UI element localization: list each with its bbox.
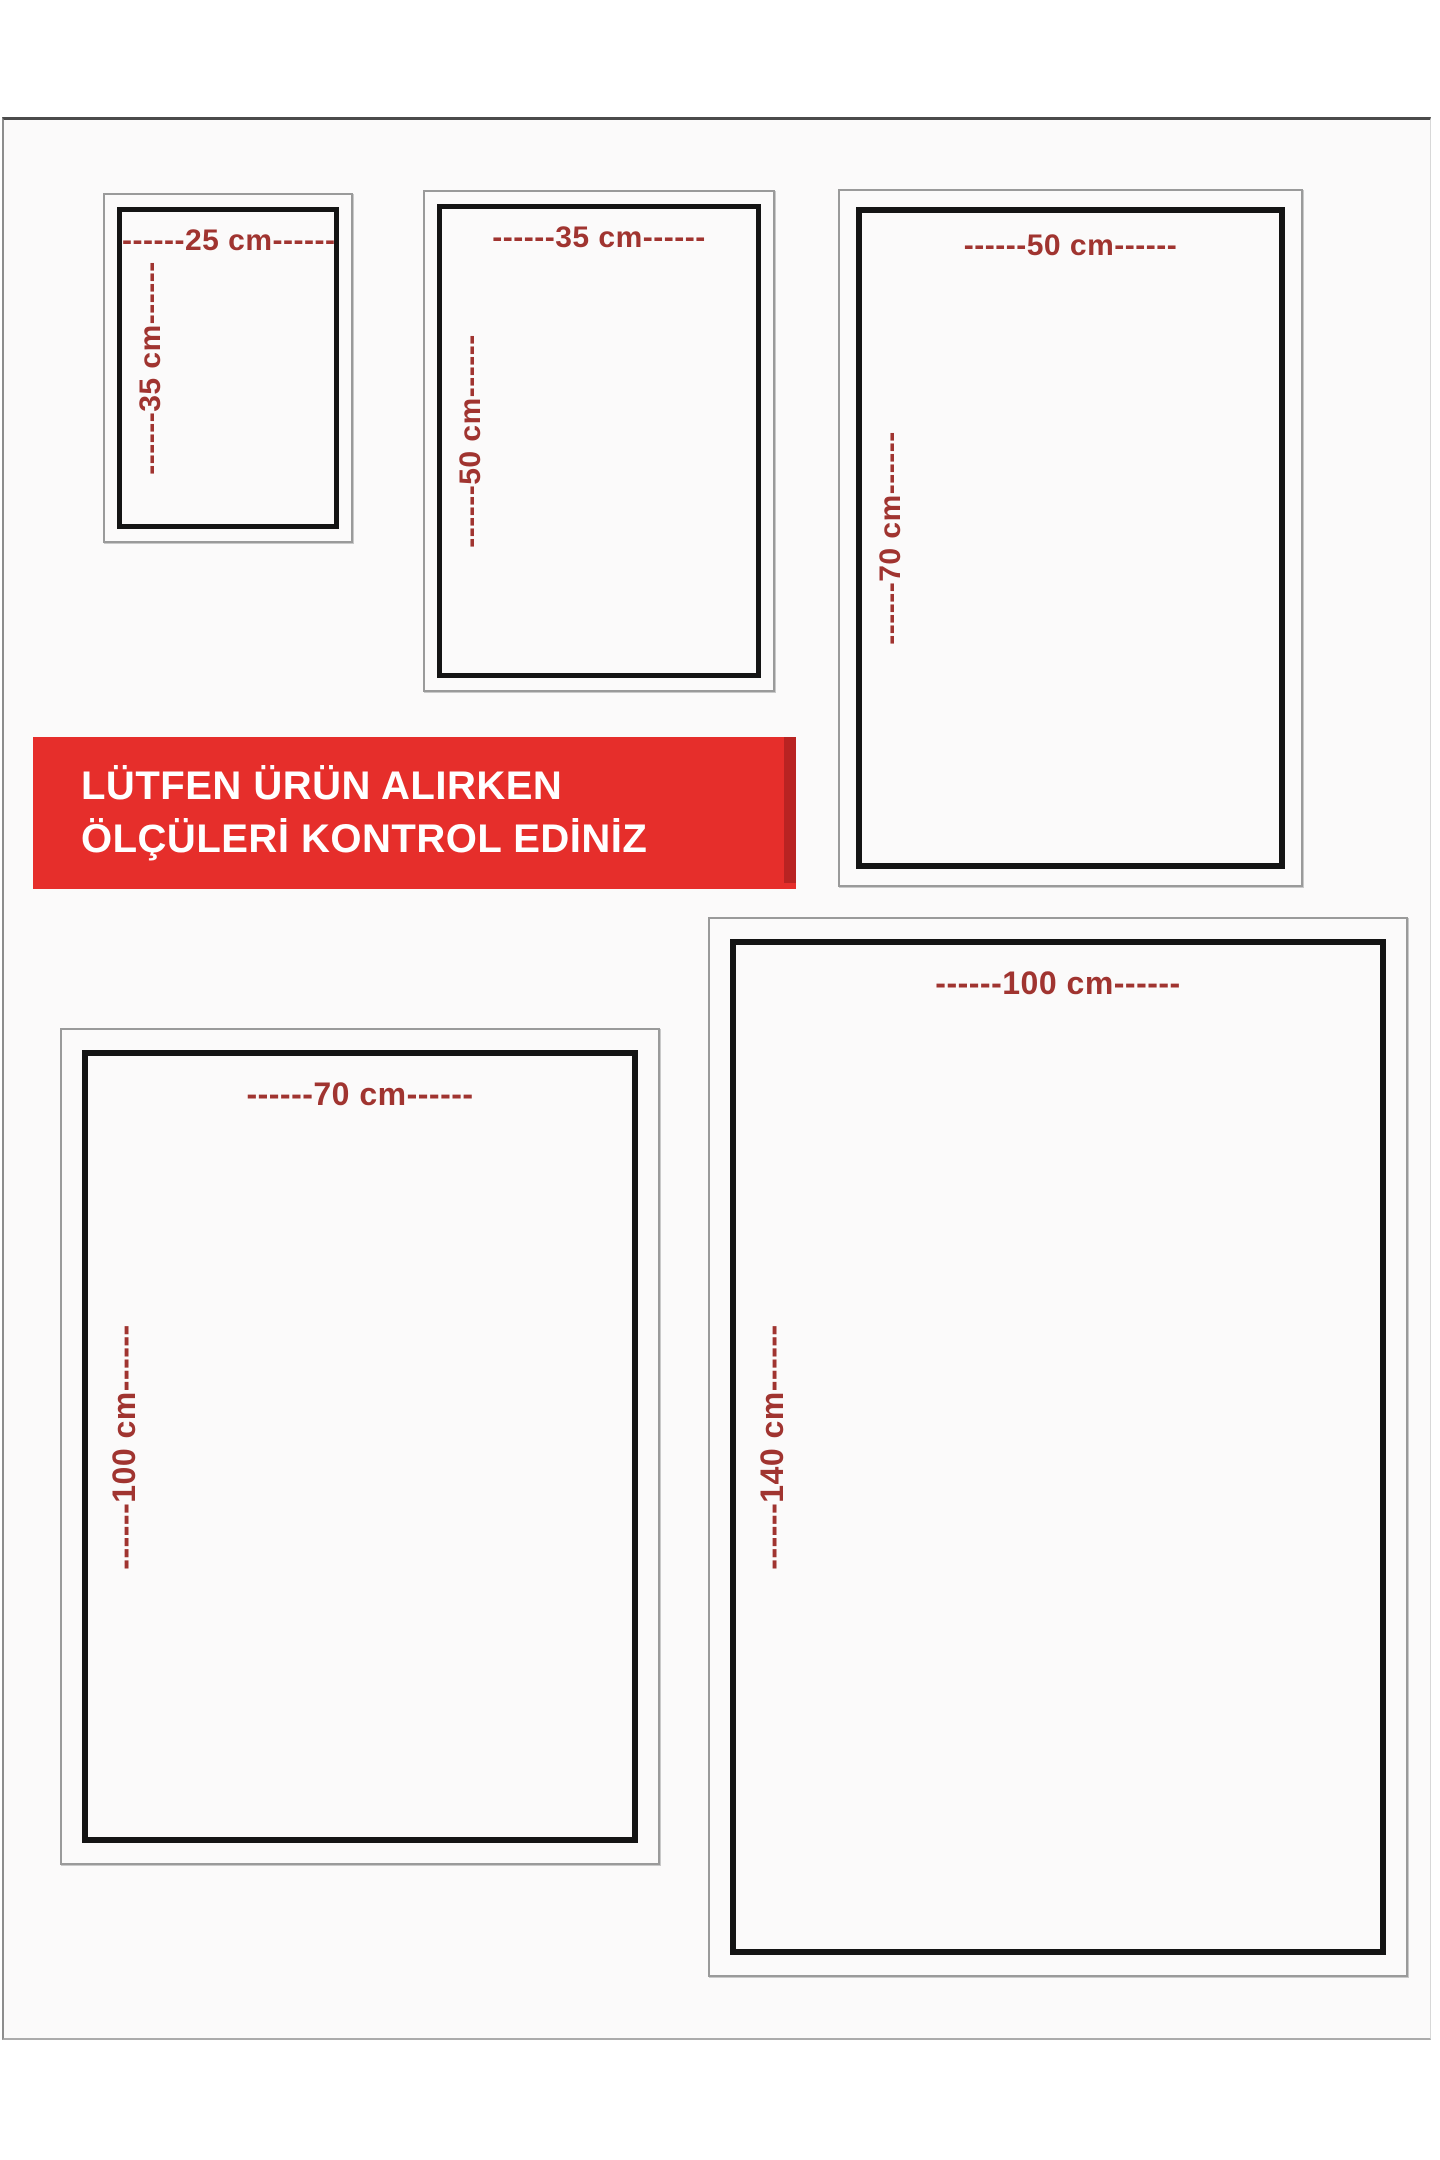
width-label: ------25 cm------ xyxy=(122,224,334,258)
size-box-70x100-frame: ------70 cm------ ------100 cm------ xyxy=(82,1050,638,1843)
size-box-70x100: ------70 cm------ ------100 cm------ xyxy=(60,1028,660,1865)
height-label: ------70 cm------ xyxy=(874,431,908,644)
size-box-50x70: ------50 cm------ ------70 cm------ xyxy=(838,189,1303,887)
size-box-35x50: ------35 cm------ ------50 cm------ xyxy=(423,190,775,692)
size-box-100x140: ------100 cm------ ------140 cm------ xyxy=(708,917,1408,1977)
height-label: ------100 cm------ xyxy=(106,1324,143,1569)
width-label: ------50 cm------ xyxy=(862,229,1279,263)
warning-banner: LÜTFEN ÜRÜN ALIRKEN ÖLÇÜLERİ KONTROL EDİ… xyxy=(33,737,796,889)
size-box-25x35: ------25 cm------ ------35 cm------ xyxy=(103,193,353,543)
warning-banner-line2: ÖLÇÜLERİ KONTROL EDİNİZ xyxy=(81,813,796,866)
height-label: ------140 cm------ xyxy=(754,1324,791,1569)
size-box-35x50-frame: ------35 cm------ ------50 cm------ xyxy=(437,204,761,678)
size-box-100x140-frame: ------100 cm------ ------140 cm------ xyxy=(730,939,1386,1955)
height-label: ------50 cm------ xyxy=(454,334,488,547)
width-label: ------100 cm------ xyxy=(736,965,1380,1002)
width-label: ------70 cm------ xyxy=(88,1076,632,1113)
width-label: ------35 cm------ xyxy=(442,221,756,255)
size-box-50x70-frame: ------50 cm------ ------70 cm------ xyxy=(856,207,1285,869)
size-box-25x35-frame: ------25 cm------ ------35 cm------ xyxy=(117,207,339,529)
warning-banner-line1: LÜTFEN ÜRÜN ALIRKEN xyxy=(81,760,796,813)
height-label: ------35 cm------ xyxy=(134,261,168,474)
size-guide-sheet: { "banner": { "line1": "LÜTFEN ÜRÜN ALIR… xyxy=(0,0,1440,2160)
